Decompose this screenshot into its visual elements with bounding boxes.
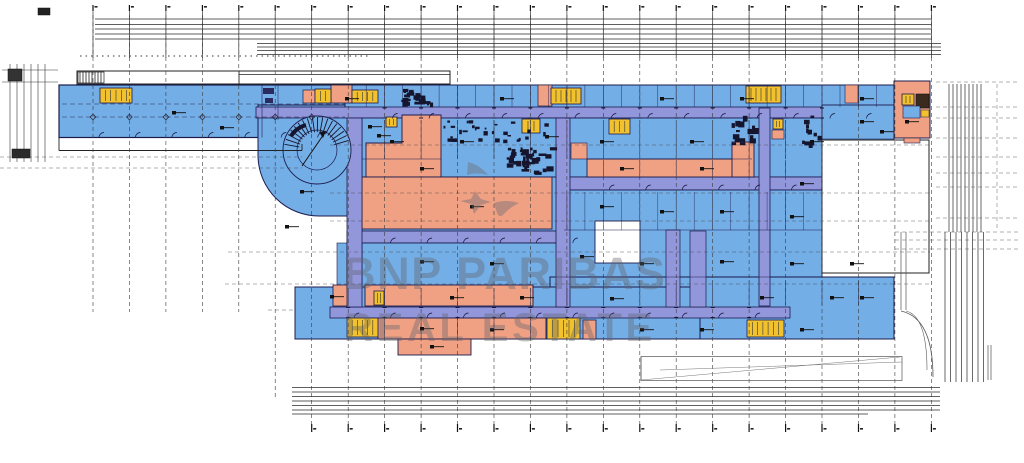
svg-text:REAL ESTATE: REAL ESTATE [344, 306, 656, 350]
svg-text:BNP PARIBAS: BNP PARIBAS [343, 248, 666, 299]
